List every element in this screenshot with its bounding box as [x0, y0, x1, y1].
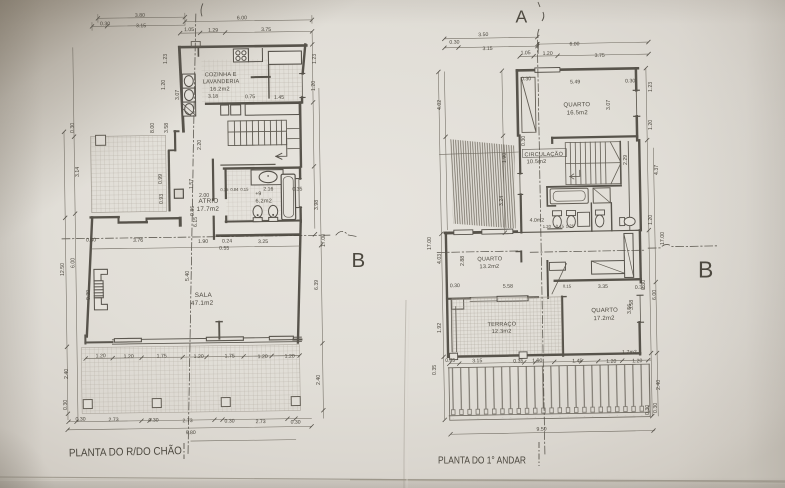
svg-text:10.5m2: 10.5m2	[527, 159, 547, 165]
svg-text:0.30: 0.30	[625, 78, 635, 84]
svg-text:0.30: 0.30	[521, 136, 527, 146]
svg-text:ATRIO: ATRIO	[198, 198, 218, 205]
svg-text:1.75: 1.75	[225, 353, 235, 359]
svg-text:5.58: 5.58	[503, 284, 513, 290]
svg-text:1.75: 1.75	[157, 353, 167, 359]
svg-text:6.39: 6.39	[314, 280, 320, 290]
svg-text:0.35: 0.35	[432, 365, 438, 375]
svg-text:16.5m2: 16.5m2	[567, 110, 589, 116]
svg-text:6.00: 6.00	[71, 258, 77, 268]
svg-text:1.20: 1.20	[96, 353, 106, 359]
svg-text:COZINHA E: COZINHA E	[205, 72, 237, 78]
svg-text:12.3m2: 12.3m2	[492, 329, 512, 335]
svg-text:2.40: 2.40	[656, 380, 662, 390]
svg-text:0.55: 0.55	[219, 246, 229, 252]
svg-text:2.40: 2.40	[64, 369, 70, 379]
svg-text:0.24: 0.24	[222, 238, 232, 244]
svg-text:0.30: 0.30	[148, 418, 158, 424]
svg-text:0.30: 0.30	[224, 418, 234, 424]
svg-text:1.20: 1.20	[648, 120, 654, 130]
svg-text:0.30: 0.30	[635, 285, 645, 291]
svg-text:1.90: 1.90	[532, 358, 542, 364]
svg-text:3.25: 3.25	[258, 239, 268, 245]
svg-text:1.23: 1.23	[312, 54, 318, 64]
svg-text:1.57: 1.57	[189, 179, 195, 189]
svg-text:1.20: 1.20	[285, 354, 295, 360]
svg-text:2.88: 2.88	[460, 256, 466, 266]
svg-text:3.58: 3.58	[164, 123, 170, 133]
svg-text:5.49: 5.49	[570, 79, 580, 85]
svg-text:1.25: 1.25	[566, 223, 575, 228]
svg-text:0.30: 0.30	[100, 21, 110, 27]
svg-text:9.50: 9.50	[536, 427, 546, 433]
svg-text:3.80: 3.80	[135, 13, 145, 19]
svg-text:17.2m2: 17.2m2	[593, 316, 615, 322]
svg-text:1.92: 1.92	[437, 323, 443, 333]
svg-text:3.56: 3.56	[627, 304, 633, 314]
svg-text:2.16: 2.16	[263, 186, 273, 192]
svg-text:0.93: 0.93	[159, 194, 165, 204]
svg-text:3.76: 3.76	[133, 238, 143, 244]
svg-text:6.00: 6.00	[237, 15, 247, 21]
svg-text:QUARTO: QUARTO	[563, 102, 590, 108]
svg-text:3.18: 3.18	[208, 94, 218, 100]
svg-text:4.03: 4.03	[437, 254, 443, 264]
svg-text:QUARTO: QUARTO	[591, 308, 618, 314]
svg-text:17.00: 17.00	[321, 234, 327, 247]
svg-text:+9: +9	[255, 191, 261, 197]
svg-text:6.00: 6.00	[569, 41, 579, 47]
svg-text:3.58: 3.58	[629, 300, 635, 310]
svg-text:LAVANDERIA: LAVANDERIA	[203, 79, 240, 86]
svg-text:3.75: 3.75	[261, 27, 271, 33]
svg-text:TERRAÇO: TERRAÇO	[487, 322, 516, 329]
svg-text:SALA: SALA	[195, 292, 213, 299]
svg-text:8.00: 8.00	[150, 123, 156, 133]
svg-text:3.14: 3.14	[75, 167, 81, 177]
svg-text:4.37: 4.37	[654, 165, 660, 175]
svg-text:1.20: 1.20	[648, 215, 654, 225]
svg-text:0.15: 0.15	[220, 187, 229, 192]
svg-text:3.15: 3.15	[472, 358, 482, 364]
svg-text:3.07: 3.07	[175, 90, 181, 100]
svg-text:0.30: 0.30	[521, 76, 531, 82]
svg-text:0.30: 0.30	[653, 403, 659, 413]
svg-text:1.20: 1.20	[543, 51, 553, 57]
svg-text:12.50: 12.50	[60, 263, 66, 276]
svg-text:0.30: 0.30	[450, 283, 460, 289]
svg-text:1.90: 1.90	[198, 239, 208, 245]
svg-text:1.45: 1.45	[572, 358, 582, 364]
svg-text:5.40: 5.40	[185, 271, 191, 281]
svg-text:2.20: 2.20	[197, 140, 203, 150]
svg-text:17.7m2: 17.7m2	[197, 206, 220, 213]
svg-text:PLANTA DO R/DO CHÃO: PLANTA DO R/DO CHÃO	[69, 444, 183, 459]
svg-text:1.45: 1.45	[274, 95, 284, 101]
svg-text:47.1m2: 47.1m2	[191, 300, 214, 307]
svg-text:B: B	[698, 257, 713, 283]
svg-text:3.24: 3.24	[499, 196, 505, 206]
svg-text:1.90: 1.90	[502, 153, 508, 163]
svg-text:1.20: 1.20	[543, 224, 552, 229]
svg-text:3.98: 3.98	[314, 200, 320, 210]
svg-text:4.02: 4.02	[437, 100, 443, 110]
svg-text:1.20: 1.20	[632, 358, 642, 364]
svg-text:1.20: 1.20	[606, 359, 616, 365]
svg-text:0.99: 0.99	[158, 174, 164, 184]
svg-text:17.00: 17.00	[427, 237, 433, 250]
svg-text:1.7m2: 1.7m2	[622, 349, 637, 355]
svg-text:2.73: 2.73	[108, 417, 118, 423]
svg-text:1.20: 1.20	[161, 80, 167, 90]
svg-text:3.50: 3.50	[478, 32, 488, 38]
svg-text:0.86: 0.86	[190, 206, 196, 216]
svg-text:2.40: 2.40	[316, 375, 322, 385]
svg-text:1.20: 1.20	[194, 354, 204, 360]
svg-text:1.23: 1.23	[163, 54, 169, 64]
svg-text:CIRCULAÇÃO: CIRCULAÇÃO	[524, 151, 563, 159]
svg-text:0.35: 0.35	[513, 358, 523, 364]
svg-text:B: B	[352, 249, 366, 272]
svg-text:2.73: 2.73	[182, 418, 192, 424]
svg-text:3.75: 3.75	[595, 53, 605, 59]
svg-text:0.30: 0.30	[645, 405, 651, 415]
svg-text:0.35: 0.35	[445, 358, 455, 364]
svg-text:0.39: 0.39	[86, 290, 92, 300]
svg-text:3.15: 3.15	[482, 46, 492, 52]
svg-text:0.30: 0.30	[63, 400, 69, 410]
svg-text:3.15: 3.15	[136, 23, 146, 29]
svg-text:16.2m2: 16.2m2	[210, 87, 230, 93]
svg-text:9.80: 9.80	[186, 430, 196, 436]
svg-text:0.30: 0.30	[449, 40, 459, 46]
svg-text:1.05: 1.05	[521, 50, 531, 56]
svg-text:0.30: 0.30	[291, 420, 301, 426]
svg-text:0.30: 0.30	[86, 237, 96, 243]
svg-text:17.00: 17.00	[660, 232, 666, 245]
svg-text:2.00: 2.00	[199, 193, 209, 199]
svg-text:0.30: 0.30	[70, 123, 76, 133]
svg-text:1.20: 1.20	[258, 354, 268, 360]
svg-text:0.15: 0.15	[563, 284, 572, 289]
svg-text:6.00: 6.00	[652, 290, 658, 300]
svg-text:0.15: 0.15	[240, 187, 249, 192]
svg-text:0.84: 0.84	[230, 187, 239, 192]
svg-text:0.30: 0.30	[75, 417, 85, 423]
svg-text:1.20: 1.20	[311, 81, 317, 91]
svg-text:2.73: 2.73	[256, 419, 266, 425]
svg-text:1.05: 1.05	[184, 27, 194, 33]
svg-text:6.2m2: 6.2m2	[255, 198, 272, 204]
svg-text:1.29: 1.29	[208, 28, 218, 34]
svg-text:3.35: 3.35	[598, 284, 608, 290]
svg-text:PLANTA DO 1° ANDAR: PLANTA DO 1° ANDAR	[438, 456, 526, 467]
svg-text:3.07: 3.07	[606, 100, 612, 110]
svg-text:QUARTO: QUARTO	[477, 256, 502, 262]
svg-text:1.20: 1.20	[124, 354, 134, 360]
svg-text:0.15: 0.15	[556, 224, 565, 229]
svg-text:6.15: 6.15	[193, 217, 199, 227]
svg-text:4.0m2: 4.0m2	[530, 218, 545, 224]
svg-text:2.29: 2.29	[623, 155, 629, 165]
svg-text:0.35: 0.35	[292, 186, 302, 192]
svg-text:13.2m2: 13.2m2	[479, 264, 499, 270]
svg-text:0.75: 0.75	[245, 94, 255, 100]
svg-text:1.23: 1.23	[648, 82, 654, 92]
svg-text:0.30: 0.30	[641, 280, 647, 290]
svg-text:A: A	[516, 7, 528, 27]
